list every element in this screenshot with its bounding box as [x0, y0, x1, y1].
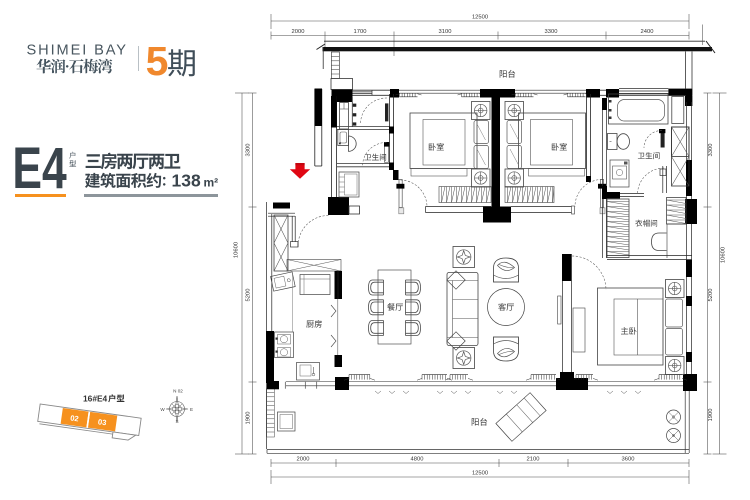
svg-text:10600: 10600	[234, 242, 240, 258]
svg-text:4800: 4800	[411, 457, 424, 463]
svg-text:138: 138	[172, 171, 201, 191]
svg-text:N 02: N 02	[173, 389, 183, 394]
svg-text:03: 03	[97, 417, 107, 427]
svg-text:5200: 5200	[246, 289, 252, 302]
svg-text:2000: 2000	[292, 29, 305, 35]
svg-text:m²: m²	[204, 176, 219, 190]
svg-text:E: E	[190, 407, 193, 412]
svg-text:E4: E4	[12, 135, 67, 200]
svg-text:3300: 3300	[708, 144, 714, 157]
svg-text:16#E4: 16#E4	[83, 394, 108, 404]
svg-text:5: 5	[146, 38, 169, 84]
svg-text:5200: 5200	[708, 289, 714, 302]
svg-text:02: 02	[70, 413, 80, 423]
svg-text:2000: 2000	[297, 457, 310, 463]
svg-text:2400: 2400	[641, 29, 654, 35]
svg-text:10600: 10600	[721, 247, 727, 263]
svg-text:1900: 1900	[708, 409, 714, 422]
svg-text:12500: 12500	[472, 471, 488, 477]
svg-text:1900: 1900	[246, 412, 252, 425]
svg-text:3100: 3100	[439, 29, 452, 35]
svg-text:W: W	[160, 407, 165, 412]
svg-text:SHIMEI BAY: SHIMEI BAY	[27, 43, 128, 59]
svg-text:2100: 2100	[527, 457, 540, 463]
svg-text:S: S	[175, 419, 178, 424]
svg-text:3300: 3300	[545, 29, 558, 35]
svg-text:3600: 3600	[622, 457, 635, 463]
svg-text:3300: 3300	[246, 144, 252, 157]
svg-text:1700: 1700	[354, 29, 367, 35]
svg-text:12500: 12500	[472, 15, 488, 21]
